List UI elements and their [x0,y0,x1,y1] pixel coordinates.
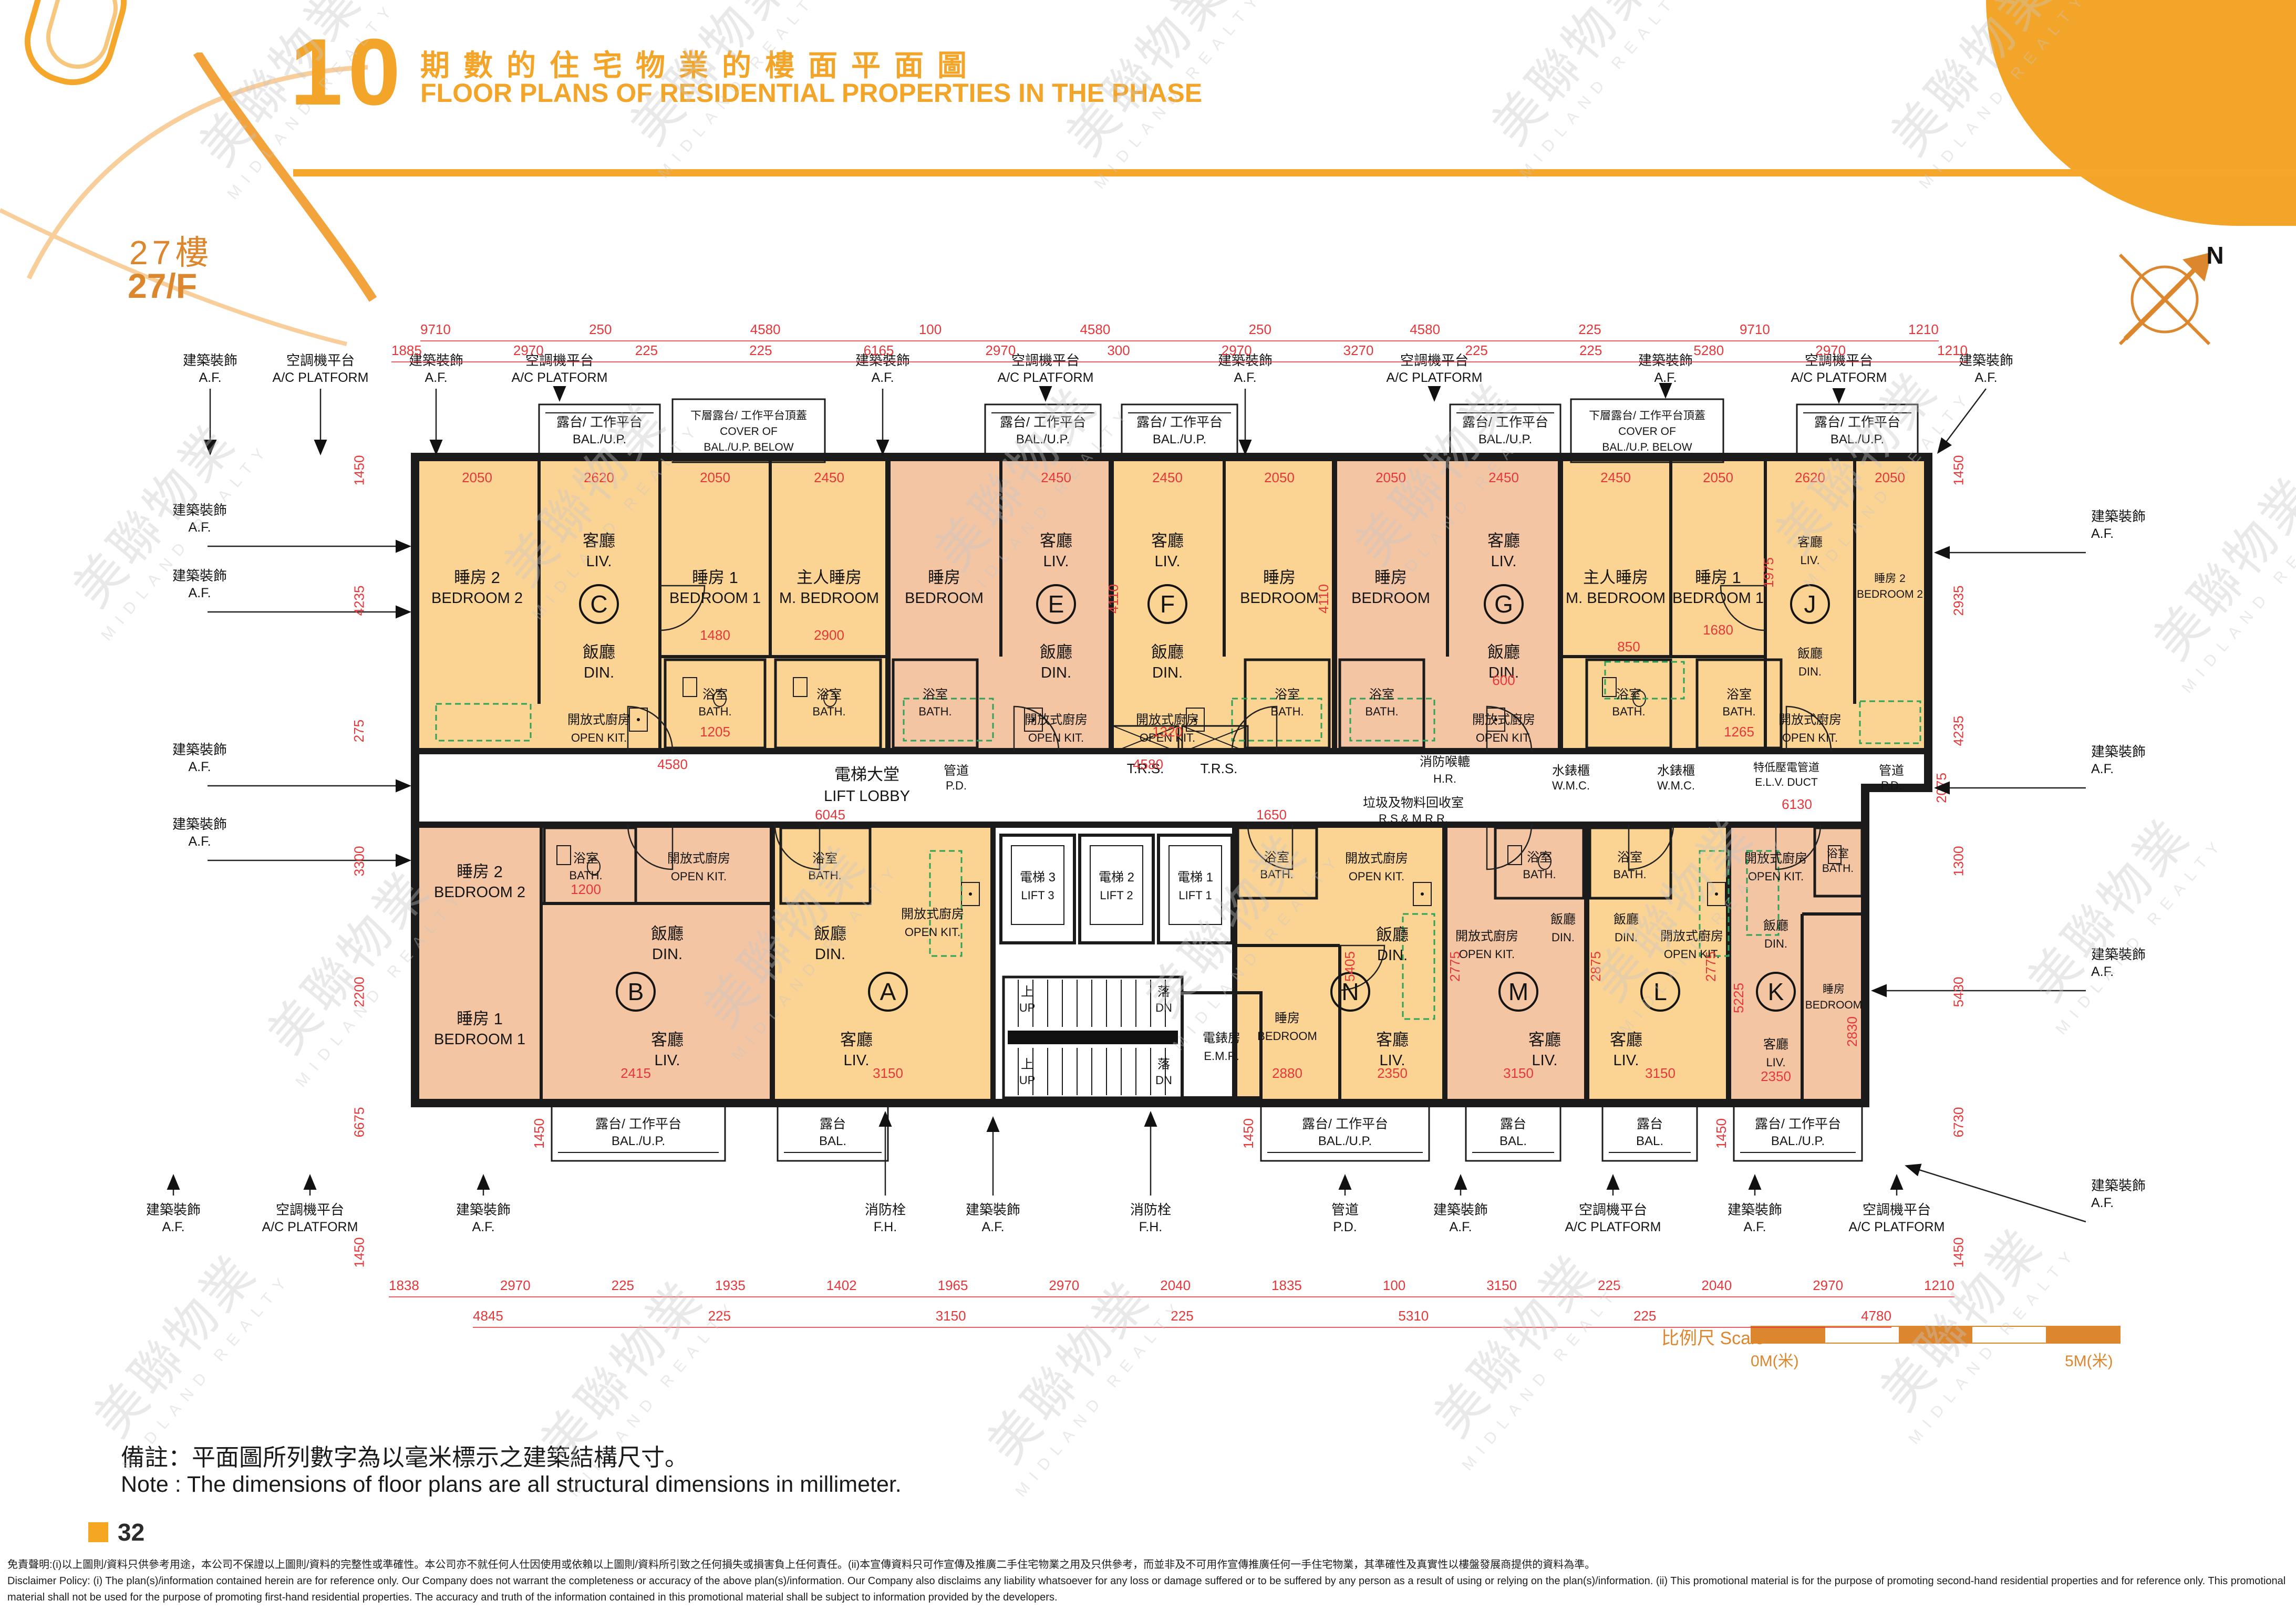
svg-text:A.F.: A.F. [1234,370,1256,385]
room-label-en: BATH. [698,705,731,718]
room-label-zh: 客廳 [840,1031,873,1049]
room-label-zh: 開放式廚房 [1744,851,1807,866]
room-label-en: BATH. [1613,868,1646,881]
pd-label-zh: 管道 [1879,764,1904,778]
room-label-zh: 客廳 [1151,532,1184,550]
room-label-zh: 浴室 [1264,850,1289,865]
stair-up-en: UP [1019,1001,1036,1014]
balcony-label-zh: 露台 [1637,1117,1663,1131]
room-label-zh: 浴室 [1527,850,1552,865]
svg-text:建築裝飾: 建築裝飾 [172,568,227,584]
rsmrr-label-zh: 垃圾及物料回收室 [1363,796,1464,810]
room-label-en: BATH. [1822,862,1854,875]
svg-text:A/C PLATFORM: A/C PLATFORM [998,370,1094,385]
room-label-zh: 客廳 [1610,1031,1642,1049]
room-label-en: BEDROOM 1 [434,1031,525,1048]
room-label-en: BEDROOM 2 [1857,588,1923,600]
dim-line [389,1296,1954,1297]
cover-label-en: BAL./U.P. BELOW [704,441,793,453]
svg-text:建築裝飾: 建築裝飾 [146,1202,201,1218]
room-label-zh: 主人睡房 [1583,568,1648,587]
room-label-zh: 浴室 [573,851,598,866]
svg-text:A.F.: A.F. [188,586,211,600]
room-label-zh: 客廳 [1763,1037,1788,1052]
room-label-zh: 睡房 1 [1695,568,1741,587]
stair-dn-en: DN [1155,1001,1172,1014]
svg-text:A.F.: A.F. [2091,762,2114,776]
room-label-zh: 浴室 [1275,688,1300,702]
svg-text:A/C PLATFORM: A/C PLATFORM [262,1220,358,1234]
svg-text:2620: 2620 [1795,470,1825,485]
cover-label-zh: 下層露台/ 工作平台頂蓋 [690,410,807,422]
wmc-label-en: W.M.C. [1657,779,1695,792]
room-label-zh: 睡房 1 [692,568,738,587]
lift-label-en: LIFT 1 [1178,889,1212,902]
room-label-en: BATH. [808,869,841,882]
unit-letter: M [1508,978,1528,1005]
cover-label-en: COVER OF [1618,425,1676,438]
compass-icon: N [2120,242,2224,344]
room-label-en: DIN. [584,664,614,681]
svg-text:A.F.: A.F. [188,834,211,849]
svg-text:A/C PLATFORM: A/C PLATFORM [273,370,369,385]
room-label-en: LIV. [1155,553,1181,570]
svg-text:A.F.: A.F. [188,520,211,535]
room-label-zh: 睡房 [928,568,960,587]
emr-label-en: E.M.R. [1204,1049,1239,1063]
stair-dn-en: DN [1155,1074,1172,1087]
balcony-label-zh: 露台/ 工作平台 [556,415,643,430]
svg-text:2050: 2050 [1875,470,1905,485]
room-label-en: DIN. [1152,664,1183,681]
room-label-en: LIV. [1532,1052,1558,1069]
room-label-en: OPEN KIT. [1476,731,1532,744]
svg-text:4580: 4580 [657,756,688,772]
svg-text:2050: 2050 [1703,470,1733,485]
room-label-en: OPEN KIT. [671,870,727,883]
svg-text:A.F.: A.F. [2091,964,2114,979]
room-label-zh: 開放式廚房 [1455,929,1518,943]
room-label-zh: 飯廳 [1550,912,1576,927]
svg-text:4110: 4110 [1105,584,1121,614]
room-label-en: OPEN KIT. [571,731,627,744]
room-label-zh: 浴室 [816,688,842,702]
svg-text:2450: 2450 [1600,470,1631,485]
room-label-zh: 開放式廚房 [901,907,964,921]
dim-row-top-2: 1885297022522561652970300297032702252255… [391,342,1968,359]
svg-text:3150: 3150 [1645,1065,1676,1081]
pd-label-en: P.D. [1881,779,1902,792]
room-label-en: OPEN KIT. [1782,731,1838,744]
svg-text:2875: 2875 [1588,951,1604,982]
balcony-label-zh: 露台/ 工作平台 [595,1117,681,1131]
svg-text:3150: 3150 [1503,1065,1534,1081]
svg-text:1480: 1480 [700,627,730,643]
dim-line [391,361,1968,362]
room-label-zh: 浴室 [1369,688,1394,702]
svg-text:A/C PLATFORM: A/C PLATFORM [512,370,608,385]
room-label-en: OPEN KIT. [1748,870,1804,883]
room-label-zh: 開放式廚房 [567,713,630,727]
svg-text:2415: 2415 [620,1065,651,1081]
page-title-en: FLOOR PLANS OF RESIDENTIAL PROPERTIES IN… [420,78,1202,108]
svg-text:5225: 5225 [1731,983,1746,1013]
wmc-label-zh: 水錶櫃 [1552,764,1590,778]
balcony-label-zh: 露台/ 工作平台 [1136,415,1223,430]
room-label-zh: 浴室 [1616,688,1641,702]
unit-letter: K [1768,978,1784,1005]
brochure-page: 10 期數的住宅物業的樓面平面圖 FLOOR PLANS OF RESIDENT… [0,0,2296,1611]
room-label-zh: 主人睡房 [797,568,862,587]
room-label-zh: 睡房 2 [457,862,503,881]
stair-dn-zh: 落 [1157,985,1170,999]
room-label-zh: 睡房 [1374,568,1407,587]
room-label-zh: 開放式廚房 [1345,851,1408,866]
hr-label-en: H.R. [1433,772,1456,785]
dim-line [420,340,1939,341]
room-label-zh: 飯廳 [1614,912,1639,927]
room-label-en: BATH. [1612,705,1645,718]
lift-lobby-zh: 電梯大堂 [834,765,899,784]
svg-text:A.F.: A.F. [1743,1220,1766,1234]
balcony-label-zh: 露台/ 工作平台 [1814,415,1900,430]
wmc-label-zh: 水錶櫃 [1657,764,1695,778]
svg-text:600: 600 [1492,672,1515,688]
balcony-label-zh: 露台/ 工作平台 [1302,1117,1388,1131]
wmc-label-en: W.M.C. [1552,779,1590,792]
page-number: 32 [118,1518,144,1546]
room-label-en: OPEN KIT. [1349,870,1404,883]
svg-text:850: 850 [1617,639,1640,654]
svg-text:1680: 1680 [1703,622,1733,638]
room-label-zh: 睡房 2 [454,568,500,587]
svg-text:2050: 2050 [462,470,492,485]
svg-text:A.F.: A.F. [162,1220,184,1234]
svg-text:空調機平台: 空調機平台 [1579,1202,1647,1218]
balcony-label-zh: 露台/ 工作平台 [1000,415,1086,430]
pd-label-zh: 管道 [944,764,969,778]
rsmrr-label-en: R.S.& M.R.R. [1379,812,1448,825]
unit-letter: F [1160,590,1175,618]
room-label-en: OPEN KIT. [1028,731,1084,744]
svg-text:2900: 2900 [814,627,844,643]
lift-label-zh: 電梯 1 [1177,870,1213,885]
room-label-en: BATH. [1722,705,1755,718]
dim-col-right: 1450293542351300543067301450 [1947,462,1970,1261]
room-label-zh: 睡房 [1263,568,1296,587]
svg-text:建築裝飾: 建築裝飾 [2091,1178,2146,1193]
balcony-label-en: BAL./U.P. [573,432,626,446]
note-en: Note : The dimensions of floor plans are… [121,1472,902,1498]
svg-text:管道: 管道 [1331,1202,1359,1218]
svg-text:2775: 2775 [1703,951,1719,982]
svg-text:A.F.: A.F. [188,760,211,774]
hr-label-zh: 消防喉轆 [1420,755,1470,769]
room-label-zh: 浴室 [1726,688,1752,702]
room-label-zh: 浴室 [1617,850,1642,865]
dim-line [473,1327,1891,1328]
balcony-label-en: BAL./U.P. [1771,1134,1825,1148]
balcony-label-zh: 露台/ 工作平台 [1462,415,1548,430]
room-label-zh: 飯廳 [1040,643,1072,661]
svg-text:建築裝飾: 建築裝飾 [1433,1202,1488,1218]
balcony-label-en: BAL. [1499,1134,1527,1148]
svg-text:建築裝飾: 建築裝飾 [183,352,237,368]
room-label-zh: 客廳 [1487,532,1520,550]
balcony-label-en: BAL. [1636,1134,1663,1148]
svg-text:5405: 5405 [1342,951,1358,982]
balcony-label-zh: 露台 [820,1117,846,1131]
balcony-label-zh: 露台 [1500,1117,1526,1131]
svg-text:2880: 2880 [1272,1065,1302,1081]
room-label-en: BEDROOM [1805,999,1863,1011]
svg-text:2050: 2050 [700,470,730,485]
dim-row-bottom-2: 4845225315022553102254780 [473,1308,1891,1324]
svg-text:A/C PLATFORM: A/C PLATFORM [1387,370,1483,385]
trs-label: T.R.S. [1201,761,1238,776]
room-label-en: DIN. [1764,937,1787,950]
room-label-zh: 飯廳 [1763,919,1788,933]
room-label-en: OPEN KIT. [1459,948,1515,961]
room-label-en: LIV. [1043,553,1069,570]
svg-text:空調機平台: 空調機平台 [286,352,355,368]
svg-text:2620: 2620 [584,470,614,485]
room-label-en: DIN. [815,946,845,963]
room-label-zh: 睡房 [1275,1011,1300,1025]
room-label-en: BATH. [1260,868,1293,881]
room-label-en: DIN. [1552,931,1575,944]
page-number-bullet [88,1522,108,1542]
stair-up-zh: 上 [1021,1057,1033,1072]
room-label-zh: 浴室 [702,688,728,702]
room-label-en: M. BEDROOM [1566,590,1666,607]
disclaimer: 免責聲明:(i)以上圖則/資料只供參考用途，本公司不保證以上圖則/資料的完整性或… [7,1557,2290,1606]
room-label-en: BATH. [1270,705,1304,718]
svg-text:A/C PLATFORM: A/C PLATFORM [1849,1220,1945,1234]
svg-text:2450: 2450 [1041,470,1071,485]
svg-text:消防栓: 消防栓 [1130,1202,1171,1218]
svg-text:A.F.: A.F. [199,370,221,385]
svg-text:建築裝飾: 建築裝飾 [966,1202,1020,1218]
scale-five: 5M(米) [2065,1348,2113,1371]
lift-label-en: LIFT 2 [1100,889,1133,902]
svg-text:3150: 3150 [873,1065,903,1081]
svg-text:建築裝飾: 建築裝飾 [456,1202,511,1218]
room-label-zh: 飯廳 [1487,643,1520,661]
svg-text:1450: 1450 [1240,1118,1256,1149]
room-label-en: BEDROOM 1 [669,590,761,607]
unit-letter: J [1804,590,1816,618]
dim-row-bottom-1: 1838297022519351402196529702040183510031… [389,1277,1954,1294]
balcony-label-en: BAL./U.P. [612,1134,665,1148]
elv-label-en: E.L.V. DUCT [1755,776,1818,788]
floor-plan: 睡房 2 BEDROOM 2 客廳 LIV. C 飯廳 DIN. 開放式廚房 O… [68,126,2233,1334]
room-label-zh: 飯廳 [651,924,684,943]
emr-label-zh: 電錶房 [1203,1031,1240,1045]
room-label-en: DIN. [1798,665,1822,678]
room-label-en: OPEN KIT. [905,926,960,939]
cover-label-en: COVER OF [720,425,778,438]
room-label-zh: 飯廳 [1797,647,1823,661]
svg-text:2830: 2830 [1844,1016,1860,1047]
unit-letter: L [1653,978,1667,1005]
room-label-zh: 客廳 [1040,532,1072,550]
svg-text:1975: 1975 [1761,557,1776,588]
balcony-label-en: BAL./U.P. [1478,432,1532,446]
svg-text:A.F.: A.F. [1654,370,1677,385]
room-label-en: LIV. [844,1052,870,1069]
room-label-zh: 浴室 [812,851,837,866]
svg-text:建築裝飾: 建築裝飾 [1728,1202,1782,1218]
room-label-en: DIN. [1041,664,1071,681]
svg-text:6130: 6130 [1782,796,1812,812]
left-callouts: 建築裝飾A.F. 建築裝飾A.F. 建築裝飾A.F. 建築裝飾A.F. [172,502,409,860]
room-label-zh: 睡房 1 [457,1010,503,1028]
room-label-en: BEDROOM [1240,590,1319,607]
room-label-en: LIV. [1614,1052,1639,1069]
room-label-zh: 開放式廚房 [1778,713,1842,727]
dim-row-top-1: 971025045801004580250458022597101210 [420,321,1939,338]
room-label-en: BATH. [918,705,952,718]
svg-text:空調機平台: 空調機平台 [276,1202,344,1218]
room-label-zh: 開放式廚房 [1472,713,1535,727]
balcony-label-en: BAL. [819,1134,846,1148]
scale-zero: 0M(米) [1751,1348,1799,1371]
svg-text:1320: 1320 [1152,724,1183,740]
balcony-label-zh: 露台/ 工作平台 [1755,1117,1841,1131]
disclaimer-en: Disclaimer Policy: (i) The plan(s)/infor… [7,1573,2290,1606]
balcony-label-en: BAL./U.P. [1318,1134,1372,1148]
unit-letter: B [628,978,644,1005]
dim-col-left: 145042352753300220066751450 [348,462,371,1261]
svg-text:2350: 2350 [1377,1065,1408,1081]
stair-dn-zh: 落 [1157,1057,1170,1072]
lift-label-en: LIFT 3 [1021,889,1054,902]
room-label-zh: 開放式廚房 [1660,929,1723,943]
cover-label-en: BAL./U.P. BELOW [1602,441,1692,453]
cover-label-zh: 下層露台/ 工作平台頂蓋 [1589,410,1705,422]
svg-text:2450: 2450 [1152,470,1183,485]
balcony-label-en: BAL./U.P. [1153,432,1206,446]
room-label-zh: 客廳 [1528,1031,1561,1049]
svg-text:2775: 2775 [1447,951,1463,982]
stair-up-zh: 上 [1021,985,1033,999]
svg-text:F.H.: F.H. [1139,1220,1162,1234]
unit-letter: E [1048,590,1064,618]
svg-text:2450: 2450 [814,470,844,485]
svg-text:6045: 6045 [815,807,845,823]
room-label-zh: 飯廳 [1151,643,1184,661]
room-label-zh: 開放式廚房 [1025,713,1088,727]
room-label-zh: 睡房 [1823,983,1845,995]
room-label-en: LIV. [1491,553,1517,570]
room-label-en: LIV. [1766,1056,1785,1069]
room-label-en: LIV. [1800,554,1819,567]
svg-text:建築裝飾: 建築裝飾 [172,816,227,832]
svg-text:建築裝飾: 建築裝飾 [2091,947,2146,962]
elv-label-zh: 特低壓電管道 [1753,762,1819,774]
lift-label-zh: 電梯 3 [1020,870,1056,885]
note-zh: 備註：平面圖所列數字為以毫米標示之建築結構尺寸。 [121,1438,688,1472]
svg-text:A.F.: A.F. [1974,370,1997,385]
room-label-zh: 飯廳 [1376,926,1409,944]
svg-text:A.F.: A.F. [981,1220,1004,1234]
room-label-en: DIN. [1377,947,1408,964]
svg-text:A.F.: A.F. [425,370,447,385]
section-number: 10 [290,25,406,120]
svg-text:A/C PLATFORM: A/C PLATFORM [1791,370,1887,385]
room-label-zh: 客廳 [651,1031,684,1049]
svg-text:空調機平台: 空調機平台 [1863,1202,1931,1218]
room-label-en: BATH. [1523,868,1556,881]
room-label-zh: 客廳 [1376,1031,1409,1049]
room-label-en: M. BEDROOM [779,590,879,607]
svg-text:A.F.: A.F. [871,370,894,385]
room-label-en: DIN. [1615,931,1638,944]
room-label-zh: 睡房 2 [1874,573,1906,585]
room-label-en: BEDROOM 2 [434,884,525,901]
svg-text:建築裝飾: 建築裝飾 [2091,744,2146,760]
svg-text:A.F.: A.F. [2091,1196,2114,1210]
unit-letter: A [880,978,896,1005]
svg-text:4580: 4580 [1133,756,1163,772]
svg-text:2050: 2050 [1264,470,1295,485]
unit-letter: C [590,590,607,618]
svg-text:1450: 1450 [1713,1118,1729,1149]
unit-letter: G [1494,590,1513,618]
disclaimer-zh: 免責聲明:(i)以上圖則/資料只供參考用途，本公司不保證以上圖則/資料的完整性或… [7,1557,2290,1573]
svg-text:A.F.: A.F. [1449,1220,1472,1234]
svg-text:4110: 4110 [1316,584,1331,614]
svg-text:P.D.: P.D. [1333,1220,1357,1234]
room-label-en: DIN. [652,946,682,963]
room-label-en: LIV. [586,553,612,570]
svg-text:A/C PLATFORM: A/C PLATFORM [1565,1220,1661,1234]
svg-text:1265: 1265 [1724,724,1754,740]
svg-text:消防栓: 消防栓 [865,1202,906,1218]
room-label-zh: 浴室 [1827,848,1849,860]
svg-text:A.F.: A.F. [472,1220,494,1234]
balcony-label-en: BAL./U.P. [1016,432,1070,446]
stair-up-en: UP [1019,1074,1036,1087]
room-label-en: BEDROOM [1257,1030,1317,1043]
svg-text:建築裝飾: 建築裝飾 [2091,508,2146,524]
room-label-en: BATH. [569,869,602,882]
balcony-label-en: BAL./U.P. [1830,432,1884,446]
svg-text:2050: 2050 [1375,470,1406,485]
room-label-zh: 客廳 [583,532,615,550]
svg-text:建築裝飾: 建築裝飾 [172,742,227,757]
room-label-zh: 浴室 [923,688,948,702]
room-label-zh: 客廳 [1797,535,1823,549]
room-label-en: BEDROOM [1351,590,1430,607]
room-label-en: BEDROOM [905,590,984,607]
room-label-zh: 飯廳 [583,643,615,661]
room-label-en: BATH. [1365,705,1398,718]
top-callouts: 建築裝飾A.F. 空調機平台A/C PLATFORM 建築裝飾A.F. 空調機平… [183,352,2013,453]
bottom-callouts: 建築裝飾A.F. 空調機平台A/C PLATFORM 建築裝飾A.F. 消防栓F… [146,1114,1945,1234]
svg-text:1450: 1450 [531,1118,547,1149]
compass-north-label: N [2206,242,2223,269]
lift-label-zh: 電梯 2 [1099,870,1134,885]
svg-text:2350: 2350 [1761,1068,1791,1084]
room-label-en: BEDROOM 1 [1672,590,1764,607]
svg-text:A.F.: A.F. [2091,526,2114,541]
room-label-en: LIV. [655,1052,680,1069]
lift-lobby-en: LIFT LOBBY [824,788,910,805]
svg-text:F.H.: F.H. [874,1220,897,1234]
room-label-zh: 開放式廚房 [667,851,730,866]
